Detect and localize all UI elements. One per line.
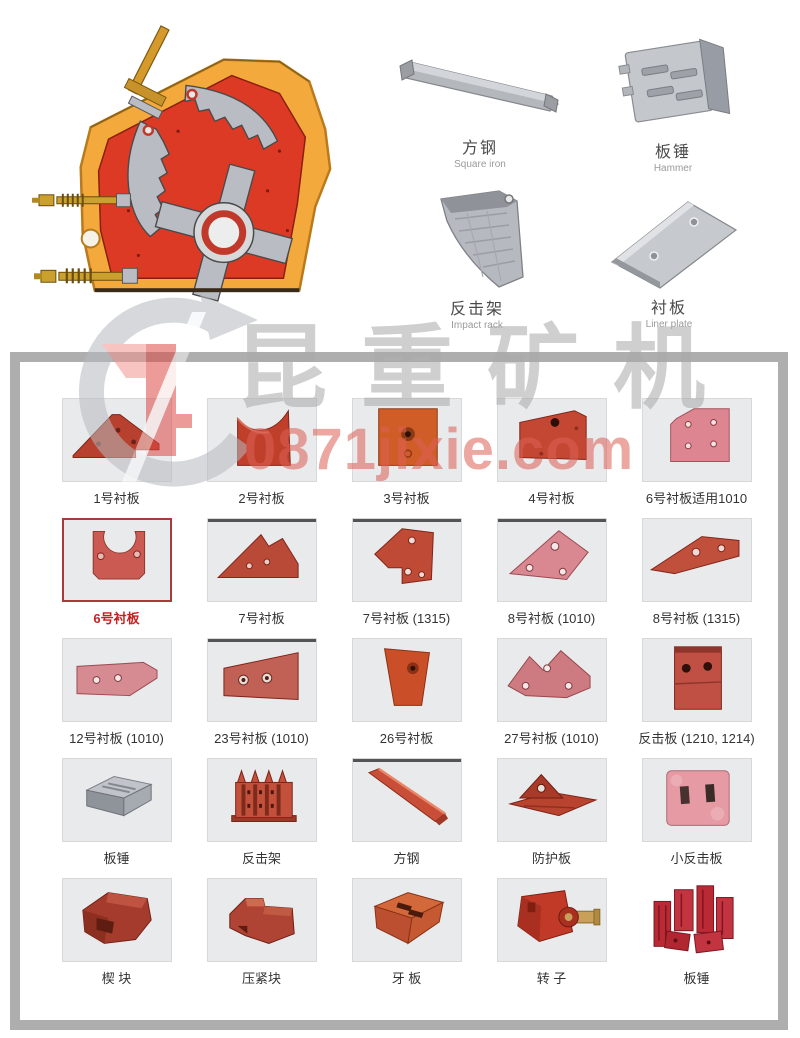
hammer-image [600,28,746,136]
part-cell-small-impact-plate[interactable]: 小反击板 [624,758,769,878]
part-caption: 3号衬板 [383,488,429,507]
part-image [497,878,607,962]
part-image [352,398,462,482]
part-image [642,518,752,602]
square-iron-label-zh: 方钢 [388,134,572,158]
part-caption: 7号衬板 [238,608,284,627]
part-caption: 27号衬板 (1010) [504,728,599,747]
top-section: 方钢 Square iron 板锤 Hammer [0,0,800,352]
figure-impact-rack: 反击架 Impact rack [402,185,552,331]
part-cell-liner-3[interactable]: 3号衬板 [334,398,479,518]
impact-rack-image [407,185,547,293]
liner-plate-image [596,190,742,292]
part-cell-liner-4[interactable]: 4号衬板 [479,398,624,518]
parts-catalog-panel: 1号衬板 2号衬板 3号衬板 4号衬板 [10,352,788,1030]
part-image [497,758,607,842]
part-cell-clamp-block[interactable]: 压紧块 [189,878,334,998]
part-image [207,398,317,482]
part-cell-impact-rack[interactable]: 反击架 [189,758,334,878]
part-cell-liner-7[interactable]: 7号衬板 [189,518,334,638]
part-cell-liner-23-1010[interactable]: 23号衬板 (1010) [189,638,334,758]
part-caption: 反击架 [242,848,281,867]
part-caption: 反击板 (1210, 1214) [638,728,754,747]
part-caption: 转 子 [537,968,567,987]
part-cell-tooth-plate[interactable]: 牙 板 [334,878,479,998]
part-image [642,758,752,842]
part-image [642,398,752,482]
part-image [62,398,172,482]
part-image [62,758,172,842]
part-caption: 12号衬板 (1010) [69,728,164,747]
figure-liner-plate: 衬板 Liner plate [594,190,744,330]
liner-plate-label-zh: 衬板 [594,294,744,318]
part-caption: 7号衬板 (1315) [363,608,450,627]
parts-grid: 1号衬板 2号衬板 3号衬板 4号衬板 [44,398,769,998]
part-image [352,518,462,602]
part-cell-rotor[interactable]: 转 子 [479,878,624,998]
part-caption: 6号衬板 [93,608,139,627]
part-caption: 板锤 [103,848,129,867]
part-caption: 8号衬板 (1315) [653,608,740,627]
part-caption: 26号衬板 [380,728,433,747]
part-caption: 8号衬板 (1010) [508,608,595,627]
part-image [497,518,607,602]
part-cell-guard-plate[interactable]: 防护板 [479,758,624,878]
square-iron-label-en: Square iron [388,159,572,170]
part-cell-hammer-block[interactable]: 板锤 [44,758,189,878]
part-image [352,758,462,842]
part-cell-wedge-block[interactable]: 楔 块 [44,878,189,998]
part-caption: 楔 块 [102,968,132,987]
part-cell-square-iron[interactable]: 方钢 [334,758,479,878]
hammer-label-en: Hammer [598,163,748,174]
part-image [207,878,317,962]
part-cell-liner-27-1010[interactable]: 27号衬板 (1010) [479,638,624,758]
part-image [352,638,462,722]
part-image [642,638,752,722]
liner-plate-label-en: Liner plate [594,319,744,330]
part-cell-liner-8-1315[interactable]: 8号衬板 (1315) [624,518,769,638]
part-caption: 板锤 [683,968,709,987]
part-cell-liner-26[interactable]: 26号衬板 [334,638,479,758]
part-cell-liner-7-1315[interactable]: 7号衬板 (1315) [334,518,479,638]
part-cell-liner-6-1010[interactable]: 6号衬板适用1010 [624,398,769,518]
part-image [62,518,172,602]
part-caption: 1号衬板 [93,488,139,507]
part-caption: 压紧块 [242,968,281,987]
impact-rack-label-en: Impact rack [402,320,552,331]
part-image [207,518,317,602]
part-caption: 2号衬板 [238,488,284,507]
part-image [62,878,172,962]
part-caption: 防护板 [532,848,571,867]
part-cell-liner-1[interactable]: 1号衬板 [44,398,189,518]
part-cell-liner-12-1010[interactable]: 12号衬板 (1010) [44,638,189,758]
part-image [207,758,317,842]
part-cell-liner-8-1010[interactable]: 8号衬板 (1010) [479,518,624,638]
part-caption: 小反击板 [670,848,722,867]
part-caption: 方钢 [393,848,419,867]
top-rod [124,26,169,119]
part-cell-liner-6-selected[interactable]: 6号衬板 [44,518,189,638]
part-caption: 6号衬板适用1010 [646,488,747,507]
part-cell-impact-plate[interactable]: 反击板 (1210, 1214) [624,638,769,758]
part-cell-liner-2[interactable]: 2号衬板 [189,398,334,518]
impact-rack-label-zh: 反击架 [402,295,552,319]
part-caption: 23号衬板 (1010) [214,728,309,747]
part-image [207,638,317,722]
square-iron-image [390,40,570,132]
part-caption: 牙 板 [392,968,422,987]
impact-crusher-diagram [28,2,362,322]
hammer-label-zh: 板锤 [598,138,748,162]
part-image [352,878,462,962]
figure-hammer: 板锤 Hammer [598,28,748,174]
part-image [497,398,607,482]
part-caption: 4号衬板 [528,488,574,507]
part-image [642,878,752,962]
part-cell-hammer-set[interactable]: 板锤 [624,878,769,998]
part-image [497,638,607,722]
part-image [62,638,172,722]
figure-square-iron: 方钢 Square iron [388,40,572,170]
